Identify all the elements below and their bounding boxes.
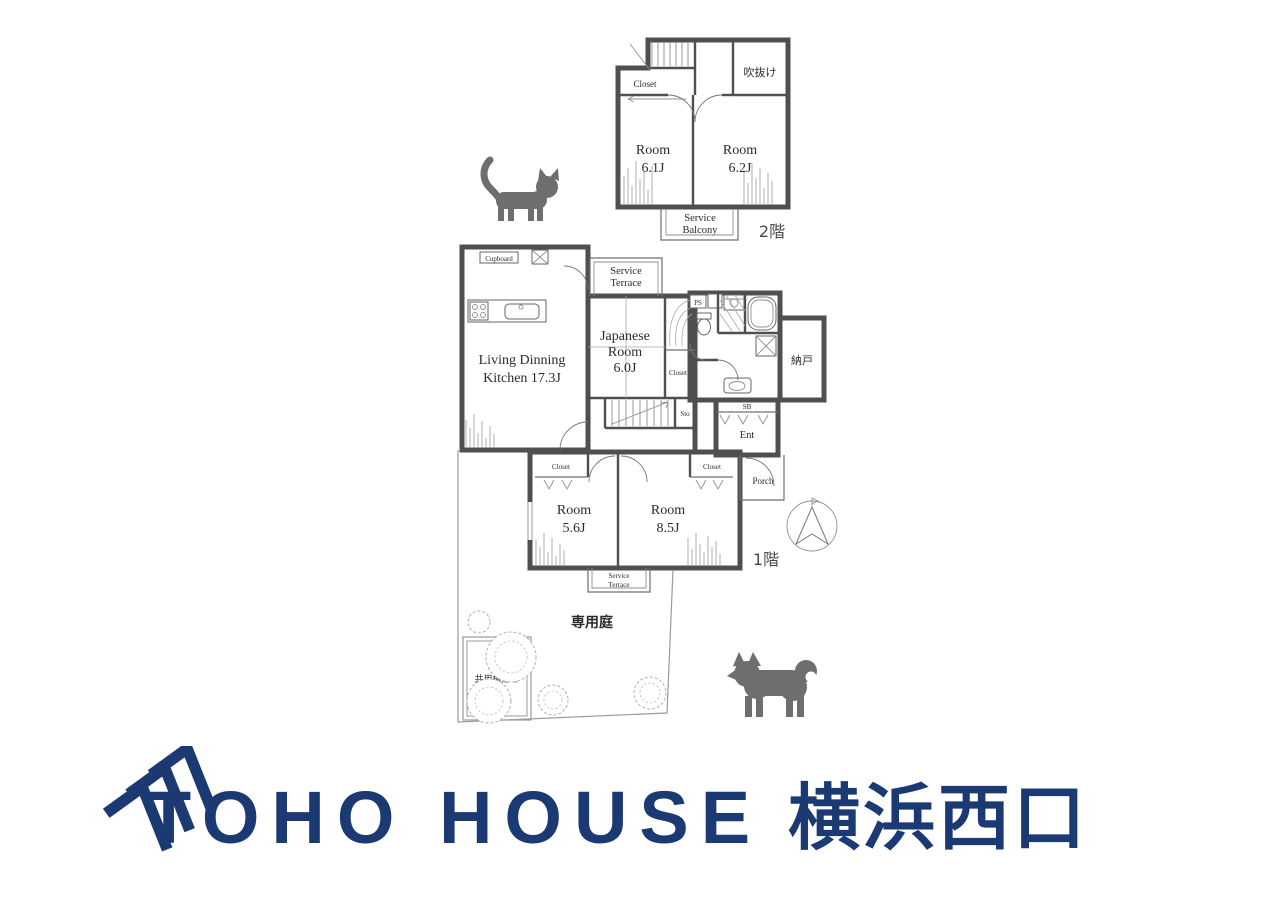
entrance-step-marks (720, 415, 768, 424)
shoe-box-label: SB (743, 403, 752, 411)
room-85-closet-label: Closet (703, 463, 721, 471)
entrance-block: SB Ent (716, 403, 778, 441)
private-garden-label: 専用庭 (571, 614, 614, 631)
sto-label: Sto (680, 410, 690, 418)
garden-bushes (467, 611, 666, 723)
north-compass-icon (787, 498, 837, 551)
ldk-door-arc-bottom (560, 422, 588, 450)
floor1-stairs: Sto (605, 398, 695, 428)
jr-label-1: Japanese (600, 329, 650, 344)
logo-text: TOHO HOUSE横浜西口 (146, 759, 1088, 864)
company-logo: TOHO HOUSE横浜西口 (100, 746, 1200, 876)
jr-label-3: 6.0J (614, 361, 638, 376)
floor1-label: 1階 (753, 550, 779, 569)
cupboard-label: Cupboard (485, 255, 513, 263)
floor2-plan: 吹抜け Closet Room 6.1J Room 6.2J Service B… (618, 40, 788, 241)
jr-label-2: Room (608, 345, 642, 360)
dog-silhouette-icon (727, 652, 817, 717)
room-56-window-comb (536, 533, 564, 566)
japanese-room: Japanese Room 6.0J Closet (588, 296, 695, 398)
room-61-name: Room (636, 143, 670, 158)
ldk-label-1: Living Dinning (479, 353, 566, 368)
void-label: 吹抜け (744, 65, 777, 79)
floor2-label: 2階 (759, 222, 785, 241)
room-61-size: 6.1J (642, 161, 666, 176)
service-terrace-top: Service Terrace (590, 258, 662, 296)
room-62-size: 6.2J (729, 161, 753, 176)
floor1-plan: Service Terrace Cupboard Living Dinnin (462, 247, 824, 592)
floorplan-flyer: 吹抜け Closet Room 6.1J Room 6.2J Service B… (0, 0, 1280, 904)
floor2-closet-label: Closet (633, 79, 657, 89)
porch-label: Porch (753, 476, 774, 486)
sanitary-block: PS (690, 293, 780, 393)
floor-plan-canvas: 吹抜け Closet Room 6.1J Room 6.2J Service B… (0, 0, 1280, 744)
ldk-window-comb (466, 414, 494, 448)
private-garden: 共用植込み 専用庭 (458, 450, 673, 723)
bathtub (748, 297, 776, 330)
cat-silhouette-icon (484, 160, 559, 221)
room-56-closet-label: Closet (552, 463, 570, 471)
toho-house-logo-icon (100, 746, 232, 862)
porch: Porch (740, 455, 784, 500)
room-62-name: Room (723, 143, 757, 158)
ldk-label-2: Kitchen 17.3J (483, 371, 561, 386)
terrace-top-label-2: Terrace (610, 278, 642, 289)
floor1-exterior-walls (462, 247, 824, 568)
ps-label: PS (694, 299, 702, 307)
service-terrace-bottom: Service Terrace (588, 568, 650, 592)
entrance-label: Ent (740, 430, 755, 441)
storage-room-label: 納戸 (791, 354, 813, 367)
closet-hanger-marks (544, 480, 723, 489)
room-85-name: Room (651, 503, 685, 518)
balcony-label-2: Balcony (683, 225, 719, 236)
brand-name: TOHO HOUSE (146, 776, 762, 859)
terrace-bottom-label-1: Service (609, 572, 630, 580)
kitchen-counter (468, 300, 546, 322)
balcony-label-1: Service (684, 213, 716, 224)
ldk-room: Cupboard Living Dinning Kitchen 17.3J (466, 250, 588, 450)
room-56-size: 5.6J (563, 521, 587, 536)
room-56-name: Room (557, 503, 591, 518)
terrace-top-label-1: Service (610, 266, 642, 277)
washroom (718, 336, 776, 393)
room-85-size: 8.5J (657, 521, 681, 536)
branch-name: 横浜西口 (788, 779, 1088, 859)
jr-closet-label: Closet (669, 369, 687, 377)
side-window (528, 502, 532, 540)
room-85-window-comb (688, 533, 720, 566)
ldk-door-arc-top (564, 266, 588, 290)
terrace-bottom-label-2: Terrace (609, 581, 630, 589)
kitchen-sink (505, 304, 539, 319)
refrigerator-space (532, 250, 548, 264)
bedroom-block: Closet Closet Room 5.6J Room 8.5J (528, 452, 733, 568)
